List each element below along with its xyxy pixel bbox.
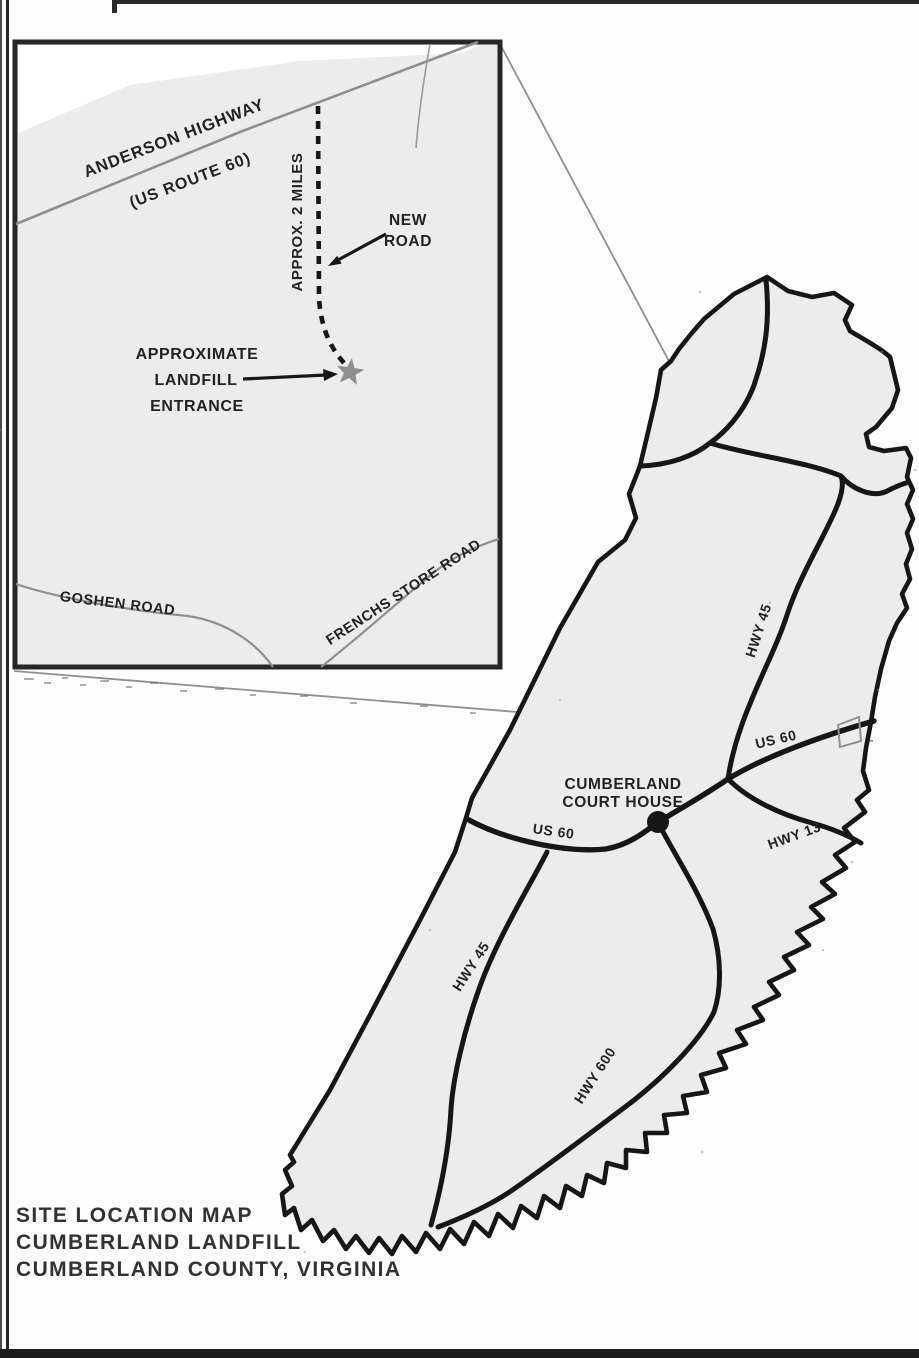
site-location-map-page: CUMBERLAND COURT HOUSE HWY 45 US 60 US 6… bbox=[0, 0, 919, 1358]
new-road-label-line2: ROAD bbox=[384, 233, 432, 250]
court-house-dot bbox=[647, 811, 669, 833]
inset-map: ANDERSON HIGHWAY (US ROUTE 60) APPROX. 2… bbox=[15, 42, 500, 667]
new-road-label-line1: NEW bbox=[389, 212, 427, 229]
court-house-label-line1: CUMBERLAND bbox=[564, 776, 681, 793]
title-line-2: CUMBERLAND LANDFILL bbox=[16, 1231, 302, 1254]
map-canvas: CUMBERLAND COURT HOUSE HWY 45 US 60 US 6… bbox=[0, 0, 919, 1358]
page-border-bottom bbox=[0, 1349, 919, 1358]
approx-distance-label: APPROX. 2 MILES bbox=[289, 152, 306, 291]
entrance-label-line2: LANDFILL bbox=[154, 372, 237, 389]
court-house-label-line2: COURT HOUSE bbox=[562, 794, 683, 811]
page-border-top-tick bbox=[112, 0, 117, 13]
page-border-left-outer bbox=[0, 0, 2, 1358]
title-line-1: SITE LOCATION MAP bbox=[16, 1204, 253, 1227]
entrance-label-line3: ENTRANCE bbox=[150, 398, 244, 415]
title-line-3: CUMBERLAND COUNTY, VIRGINIA bbox=[16, 1258, 401, 1281]
scan-noise-specks bbox=[24, 677, 476, 714]
page-border-top bbox=[112, 0, 919, 4]
page-border-left-inner bbox=[6, 0, 9, 1358]
entrance-label-line1: APPROXIMATE bbox=[136, 346, 259, 363]
